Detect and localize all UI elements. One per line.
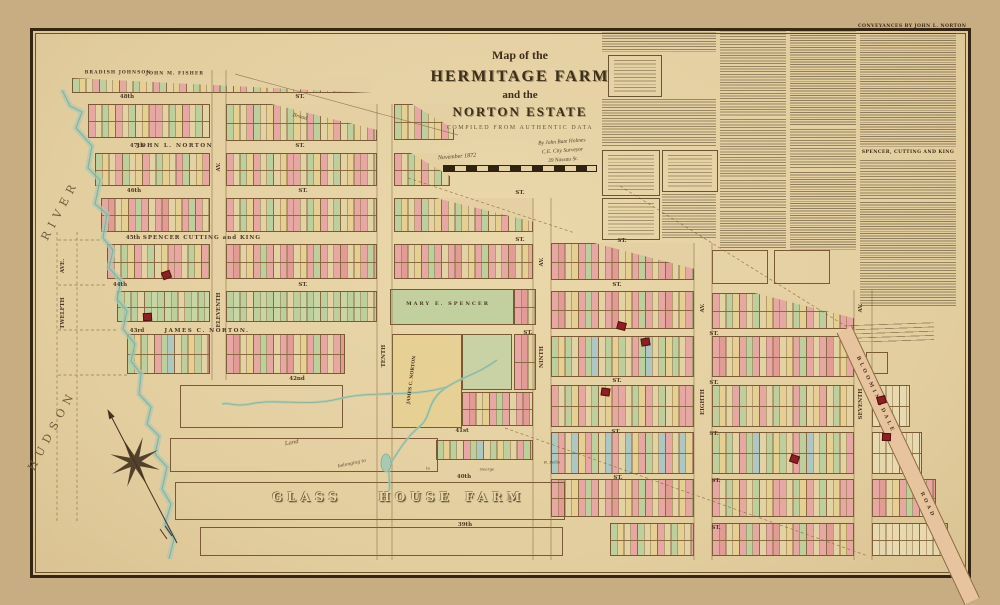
annotation-label: George — [480, 467, 495, 472]
compass-rose-star — [110, 437, 160, 487]
block-midline — [552, 310, 693, 311]
conveyances-header: CONVEYANCES BY JOHN L. NORTON — [858, 24, 958, 29]
block-midline — [713, 498, 853, 499]
deed-table-box — [608, 55, 662, 97]
deed-paragraph-text — [860, 160, 956, 200]
block-midline — [552, 498, 693, 499]
street-label: ST. — [709, 431, 718, 437]
city-block — [712, 293, 854, 329]
deed-table-text — [614, 60, 656, 92]
city-block — [226, 244, 377, 279]
avenue-label: TWELFTH — [60, 297, 66, 329]
street-label: 43rd — [130, 328, 144, 334]
deed-paragraph-text — [720, 119, 786, 177]
needle-feather — [160, 526, 172, 539]
building-marker — [600, 387, 610, 396]
city-block — [712, 250, 768, 284]
street-label: 40th — [457, 474, 471, 480]
block-midline — [227, 215, 376, 216]
city-block — [712, 479, 854, 517]
city-block — [200, 527, 563, 556]
avenue-label: AV. — [216, 162, 222, 171]
city-block — [226, 291, 377, 322]
block-midline — [96, 170, 209, 171]
deed-table-text — [608, 155, 654, 191]
block-midline — [713, 540, 853, 541]
conveyance-list-text — [860, 33, 956, 147]
city-block — [551, 479, 694, 517]
street-label: ST. — [295, 94, 304, 100]
deed-paragraph-text — [790, 129, 856, 169]
city-block — [107, 244, 210, 279]
street-label: ST. — [709, 380, 718, 386]
city-block — [712, 432, 854, 474]
city-block — [226, 104, 377, 141]
street-label: ST. — [711, 478, 720, 484]
city-block — [551, 432, 694, 474]
block-taper — [72, 78, 372, 93]
title-block: Map of the HERMITAGE FARM and the NORTON… — [430, 48, 610, 131]
block-midline — [227, 170, 376, 171]
city-block — [514, 289, 536, 325]
city-block — [101, 198, 210, 232]
farm-parcel — [392, 334, 462, 428]
map-title-line: Map of the — [430, 48, 610, 63]
city-block — [610, 523, 694, 556]
block-midline — [108, 262, 209, 263]
block-midline — [463, 409, 532, 410]
deed-table-box — [602, 150, 660, 196]
city-block — [95, 153, 210, 186]
farm-label: SPENCER CUTTING and KING — [143, 235, 261, 241]
map-title-estate: NORTON ESTATE — [430, 104, 610, 120]
deed-paragraph-text — [662, 194, 716, 238]
avenue-label: NINTH — [539, 346, 545, 368]
deed-table-box — [602, 198, 660, 240]
building-marker — [640, 337, 650, 346]
city-block — [712, 336, 854, 377]
city-block — [514, 334, 536, 390]
city-block — [436, 440, 533, 460]
street-label: ST. — [617, 238, 626, 244]
street-label: ST. — [711, 525, 720, 531]
city-block — [72, 78, 372, 93]
north-arrow-head — [107, 409, 114, 419]
city-block — [551, 336, 694, 377]
block-midline — [552, 453, 693, 454]
compass-needle — [112, 418, 177, 543]
deed-paragraph-text — [602, 30, 716, 52]
street-label: ST. — [515, 190, 524, 196]
street-label: 45th — [126, 235, 140, 241]
city-block — [712, 523, 854, 556]
water-label: HUDSON — [25, 387, 79, 472]
deed-table-box — [662, 150, 718, 192]
avenue-label: SEVENTH — [858, 389, 864, 420]
map-date: November 1872 — [438, 153, 476, 162]
street-label: ST. — [298, 188, 307, 194]
avenue-label: ELEVENTH — [216, 292, 222, 327]
water-label: RIVER — [39, 177, 82, 242]
city-block — [394, 244, 533, 279]
block-midline — [515, 307, 535, 308]
deed-paragraph-text — [720, 180, 786, 208]
conveyance-list-text — [790, 172, 856, 250]
deed-paragraph-text — [720, 28, 786, 116]
city-block — [462, 392, 533, 426]
map-canvas: BLOOMINGDALE ROAD 48thST.47thJOHN L. NOR… — [0, 0, 1000, 605]
deed-paragraph-text — [860, 262, 956, 308]
street-label: ST. — [709, 331, 718, 337]
block-midline — [713, 453, 853, 454]
map-title-main: HERMITAGE FARM — [430, 68, 610, 86]
farm-parcel — [462, 334, 512, 390]
farm-label: JOHN L. NORTON — [137, 143, 213, 149]
avenue-label: AV. — [858, 303, 864, 312]
spencer-cutting-king-header: SPENCER, CUTTING AND KING — [860, 150, 956, 155]
avenue-label: TENTH — [381, 345, 387, 368]
street-label: ST. — [295, 143, 304, 149]
city-block — [226, 198, 377, 232]
street-label: ST. — [612, 378, 621, 384]
block-midline — [552, 357, 693, 358]
street-label: ST. — [611, 429, 620, 435]
map-subtitle: COMPILED FROM AUTHENTIC DATA — [430, 125, 610, 131]
farm-label: JOHN M. FISHER — [146, 72, 204, 77]
city-block — [88, 104, 210, 138]
block-midline — [118, 307, 209, 308]
map-sheet: BLOOMINGDALE ROAD 48thST.47thJOHN L. NOR… — [0, 0, 1000, 605]
street-label: 41st — [455, 428, 468, 434]
block-midline — [611, 540, 693, 541]
building-marker — [616, 321, 627, 331]
farm-label: JAMES C. NORTON. — [165, 328, 250, 334]
street-label: ST. — [515, 237, 524, 243]
deed-table-text — [668, 155, 712, 187]
street-label: ST. — [613, 475, 622, 481]
farm-label: BRADISH JOHNSON — [85, 71, 152, 76]
city-block — [127, 334, 210, 374]
block-midline — [713, 406, 853, 407]
street-label: ST. — [298, 282, 307, 288]
glass-house-farm-word: FARM — [465, 490, 525, 504]
handwritten-note — [846, 322, 934, 342]
block-midline — [89, 121, 209, 122]
building-marker — [143, 313, 152, 321]
glass-house-farm-word: GLASS — [272, 490, 342, 504]
signature-block: By John Bute Holmes C.E. City Surveyor 3… — [514, 135, 611, 168]
building-marker — [882, 433, 891, 441]
city-block — [774, 250, 830, 284]
block-midline — [713, 357, 853, 358]
scale-bar — [443, 165, 597, 172]
street-label: ST. — [523, 330, 532, 336]
conveyance-list-text — [790, 28, 856, 126]
conveyance-list-text — [860, 202, 956, 260]
street-label: 46th — [127, 188, 141, 194]
city-block — [170, 438, 438, 472]
glass-house-farm-word: HOUSE — [378, 490, 453, 504]
street-label: 48th — [120, 94, 134, 100]
street-label: 42nd — [289, 376, 305, 382]
city-block — [117, 291, 210, 322]
avenue-label: EIGHTH — [700, 389, 706, 415]
block-midline — [128, 354, 209, 355]
annotation-label: to — [426, 466, 430, 471]
avenue-label: AV. — [539, 257, 545, 266]
city-block — [180, 385, 343, 428]
street-label: 44th — [113, 282, 127, 288]
block-midline — [102, 215, 209, 216]
city-block — [712, 385, 854, 427]
block-midline — [395, 262, 532, 263]
avenue-label: AVE. — [60, 259, 66, 273]
block-midline — [515, 362, 535, 363]
map-title-line: and the — [430, 89, 610, 101]
block-midline — [227, 354, 344, 355]
annotation-label: R. Pellis — [544, 460, 560, 465]
deed-paragraph-text — [602, 99, 716, 147]
block-midline — [227, 262, 376, 263]
city-block — [551, 243, 694, 280]
farm-parcel — [390, 289, 514, 325]
bloomingdale-road: BLOOMINGDALE ROAD — [837, 326, 980, 605]
street-label: ST. — [612, 282, 621, 288]
city-block — [551, 385, 694, 427]
block-midline — [552, 406, 693, 407]
city-block — [226, 153, 377, 186]
street-label: 39th — [458, 522, 472, 528]
block-midline — [227, 307, 376, 308]
city-block — [226, 334, 345, 374]
farm-label: MARY E. SPENCER — [406, 301, 490, 307]
conveyance-list-text — [720, 211, 786, 248]
deed-table-text — [608, 203, 654, 235]
city-block — [394, 198, 533, 232]
avenue-label: AV. — [700, 303, 706, 312]
